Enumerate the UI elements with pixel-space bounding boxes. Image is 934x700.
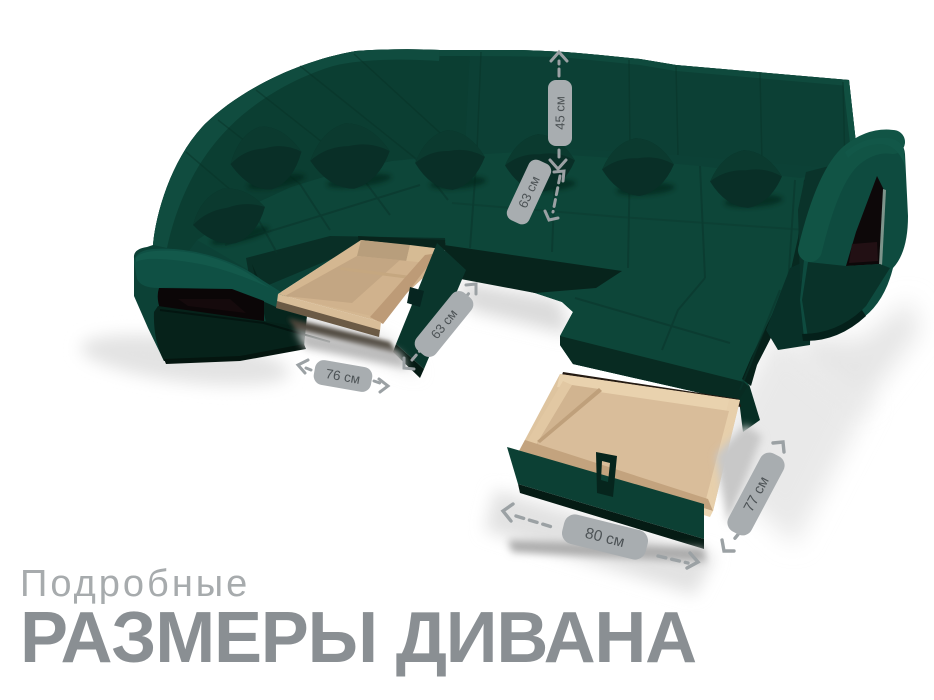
svg-text:45 см: 45 см [553,96,568,130]
